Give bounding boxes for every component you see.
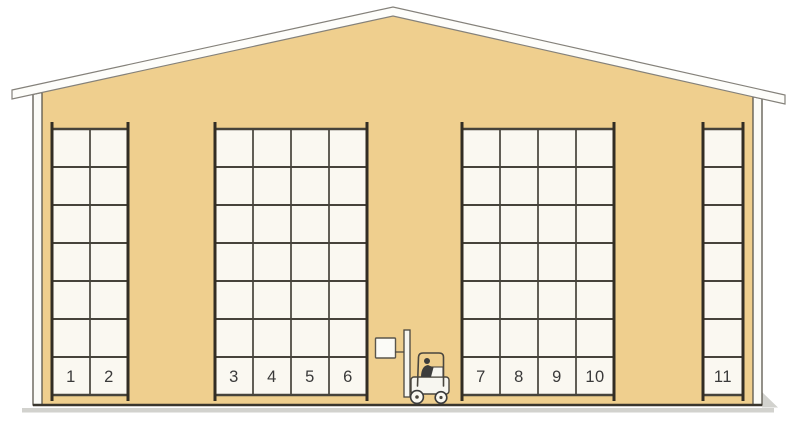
bay-number: 8 [514,368,524,386]
rack-section-4: 11 [702,122,745,401]
forklift-mast-icon [404,330,410,397]
corner-shadow [762,392,778,408]
bay-number: 1 [66,368,76,386]
bay-number: 4 [267,368,277,386]
bay-number: 6 [343,368,353,386]
ground-shadow [22,408,774,413]
forklift-load-box-icon [376,338,396,358]
bay-number: 10 [585,368,604,386]
rack-section-1: 12 [51,122,130,401]
rack-section-2: 3456 [214,122,369,401]
forklift-rear-hub-icon [439,396,442,399]
rack-interior [703,129,743,395]
rack-section-3: 78910 [461,122,616,401]
bay-number: 5 [305,368,315,386]
left-wall [33,93,42,406]
bay-number: 9 [552,368,562,386]
bay-number: 2 [104,368,114,386]
building-facade [42,16,753,405]
bay-number: 11 [714,368,732,386]
forklift-front-hub-icon [415,395,419,399]
right-wall [753,97,762,405]
bay-number: 7 [476,368,486,386]
scene-drawing: 1234567891011 [0,0,800,421]
forklift-driver-head-icon [424,358,430,364]
bay-number: 3 [229,368,239,386]
warehouse-cross-section-diagram: 1234567891011 [0,0,800,421]
